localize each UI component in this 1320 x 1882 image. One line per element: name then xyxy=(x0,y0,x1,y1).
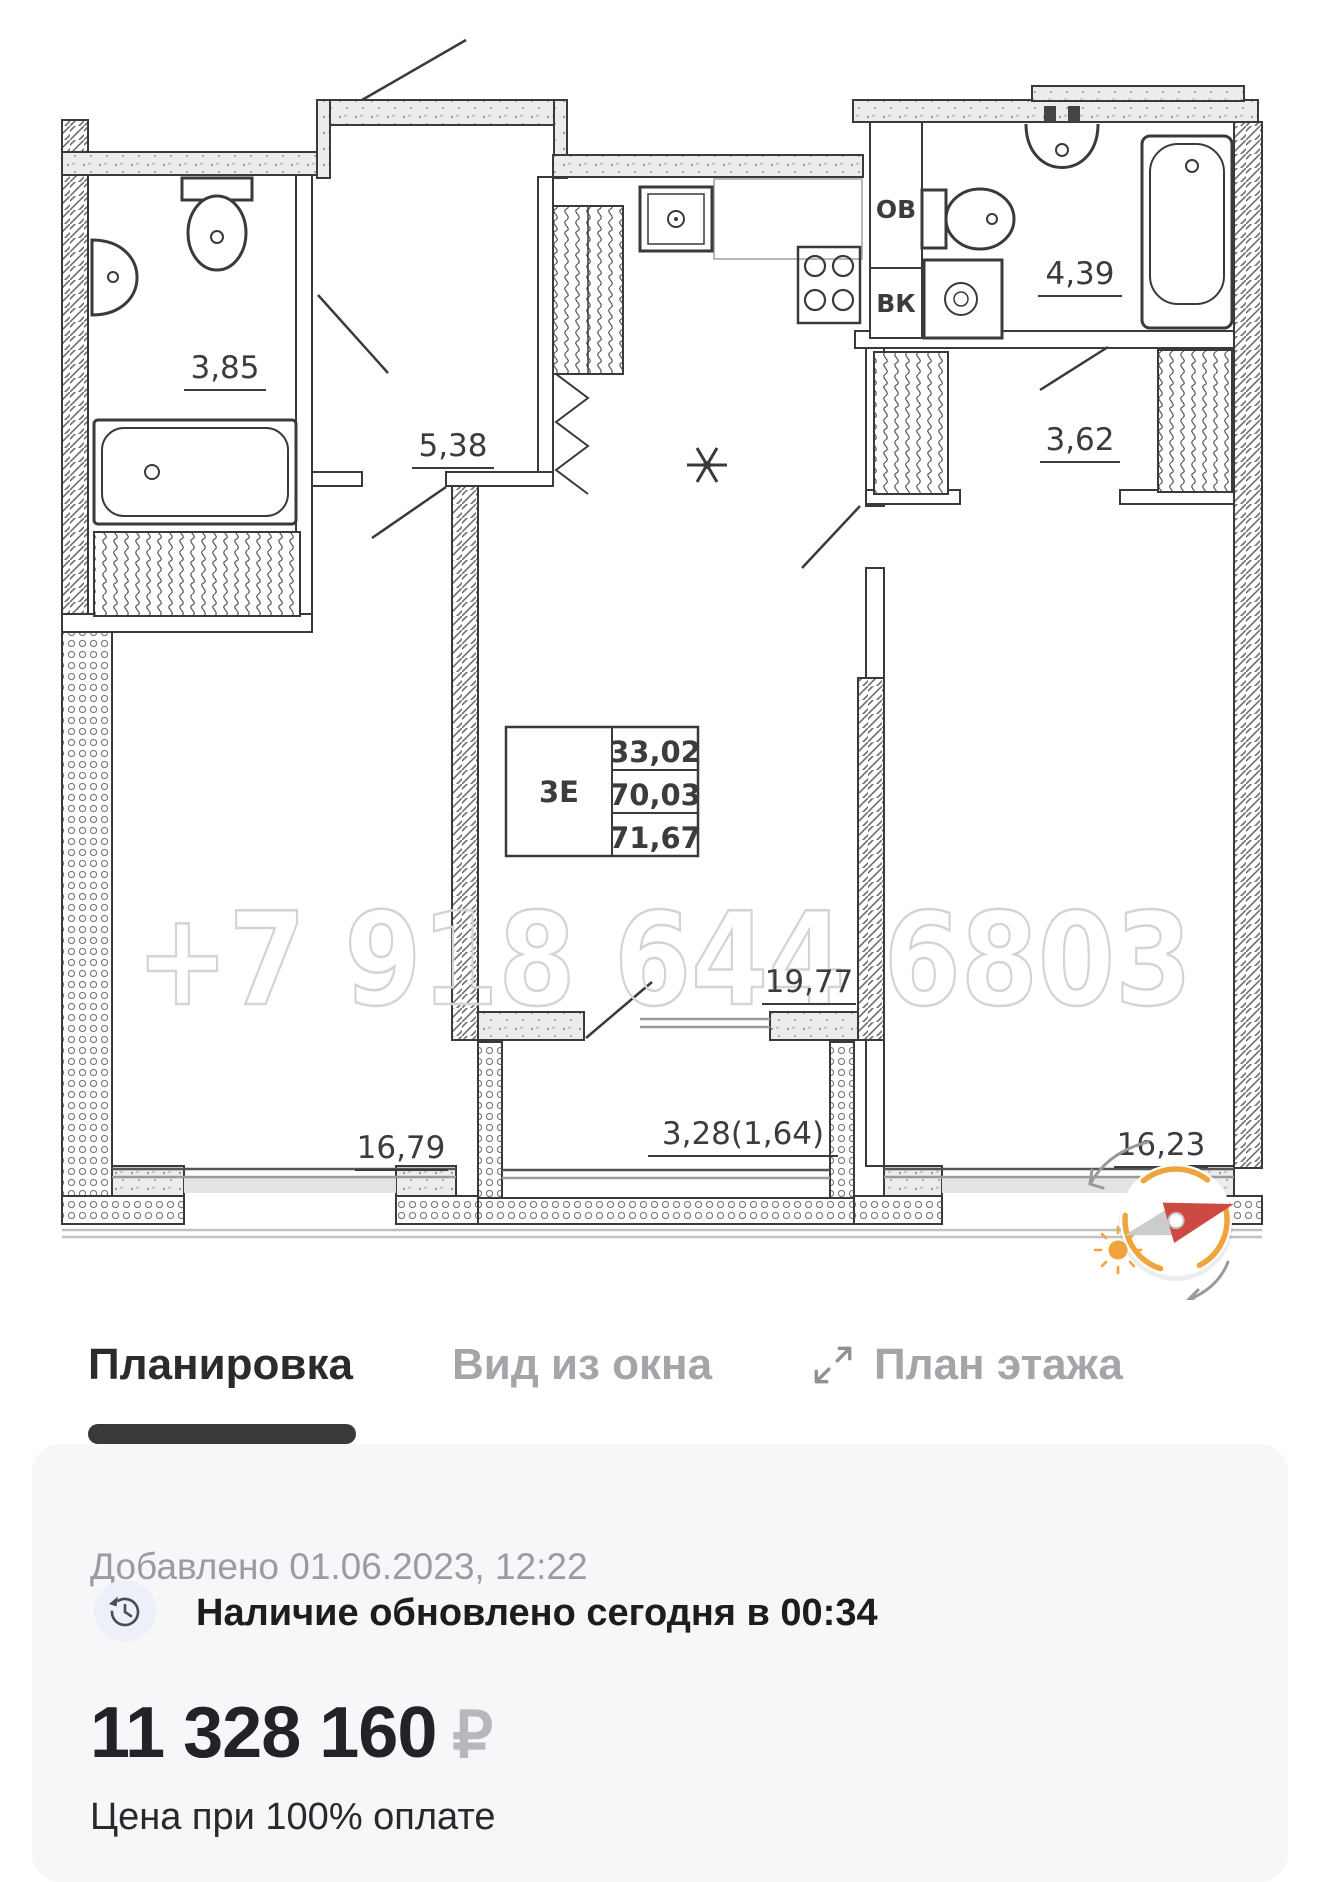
watermark-phone: +7 918 644 6803 xyxy=(136,886,1192,1035)
floor-plan-image[interactable]: 3Е 33,02 70,03 71,67 +7 918 644 6803 3,8… xyxy=(0,0,1320,1300)
added-date: Добавлено 01.06.2023, 12:22 xyxy=(90,1546,588,1588)
listing-info-card: Добавлено 01.06.2023, 12:22 Наличие обно… xyxy=(32,1444,1288,1882)
active-tab-indicator xyxy=(88,1424,356,1444)
price-row: 11 328 160 ₽ xyxy=(90,1692,493,1774)
tab-window-view[interactable]: Вид из окна xyxy=(452,1340,712,1390)
spec-type: 3Е xyxy=(539,775,579,809)
tab-floor-plan[interactable]: План этажа xyxy=(810,1340,1123,1390)
label-hallway: 5,38 xyxy=(418,428,487,464)
listing-page: 3Е 33,02 70,03 71,67 +7 918 644 6803 3,8… xyxy=(0,0,1320,1882)
label-room-left: 16,79 xyxy=(357,1130,446,1166)
label-bathroom-small: 3,85 xyxy=(190,350,259,386)
clock-refresh-icon xyxy=(95,1581,155,1641)
price-note: Цена при 100% оплате xyxy=(90,1796,495,1839)
ruble-sign: ₽ xyxy=(452,1698,493,1773)
label-bathroom-large: 4,39 xyxy=(1045,256,1114,292)
floor-plan-svg: 3Е 33,02 70,03 71,67 +7 918 644 6803 3,8… xyxy=(0,0,1320,1300)
label-balcony: 3,28(1,64) xyxy=(662,1116,824,1152)
price-value: 11 328 160 xyxy=(90,1692,436,1774)
availability-badge xyxy=(94,1580,156,1642)
expand-icon xyxy=(810,1342,856,1388)
availability-text: Наличие обновлено сегодня в 00:34 xyxy=(196,1592,878,1635)
label-shaft-ov: ОВ xyxy=(876,195,916,224)
tab-layout[interactable]: Планировка xyxy=(88,1340,353,1390)
tab-floor-plan-label: План этажа xyxy=(874,1340,1123,1390)
label-wardrobe: 3,62 xyxy=(1045,422,1114,458)
spec-total-area: 71,67 xyxy=(609,821,701,855)
label-shaft-vk: ВК xyxy=(876,289,916,318)
spec-area: 70,03 xyxy=(609,778,701,812)
spec-table: 3Е 33,02 70,03 71,67 xyxy=(506,727,701,856)
label-room-right: 16,23 xyxy=(1117,1127,1206,1163)
spec-living-area: 33,02 xyxy=(609,735,701,769)
label-kitchen-living: 19,77 xyxy=(765,964,854,1000)
